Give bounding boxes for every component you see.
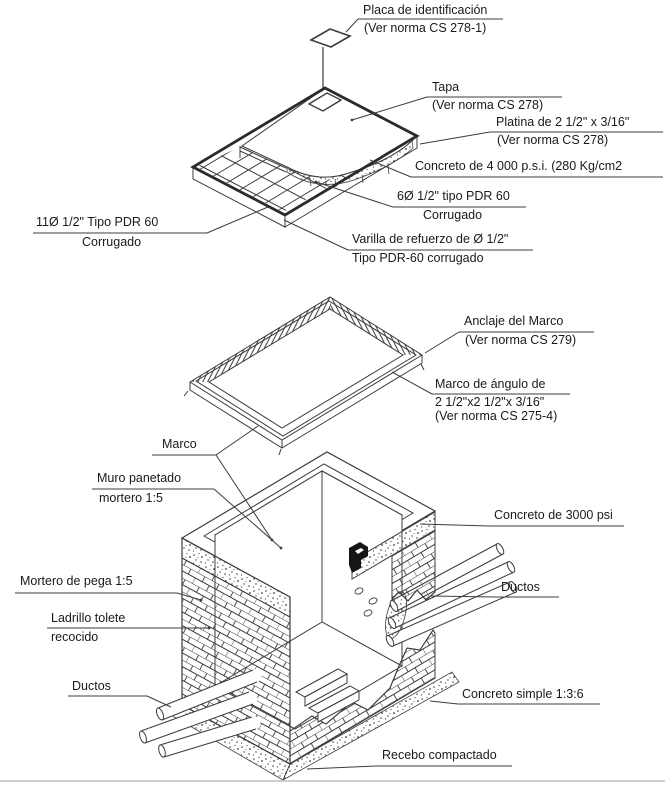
label-tapa-line2: (Ver norma CS 278): [432, 99, 543, 112]
label-marco-angulo-line3: (Ver norma CS 275-4): [435, 410, 557, 423]
label-muro-line1: Muro panetado: [97, 472, 181, 485]
label-marco: Marco: [162, 438, 197, 451]
label-ductos-right: Ductos: [501, 581, 540, 594]
label-anclaje-line1: Anclaje del Marco: [464, 315, 563, 328]
label-varilla-line2: Tipo PDR-60 corrugado: [352, 252, 484, 265]
label-platina-line2: (Ver norma CS 278): [497, 134, 608, 147]
label-rebar11-line2: Corrugado: [82, 236, 141, 249]
figure-chamber: [138, 452, 518, 780]
label-concreto4000: Concreto de 4 000 p.s.i. (280 Kg/cm2: [415, 160, 622, 173]
label-rebar11-line1: 11Ø 1/2" Tipo PDR 60: [36, 216, 158, 229]
label-placa-line1: Placa de identificación: [363, 4, 487, 17]
technical-diagram-page: Placa de identificación (Ver norma CS 27…: [0, 0, 665, 785]
label-marco-angulo-line2: 2 1/2"x2 1/2"x 3/16": [435, 396, 544, 409]
label-rebar6-line1: 6Ø 1/2" tipo PDR 60: [397, 190, 510, 203]
label-concreto-simple: Concreto simple 1:3:6: [462, 688, 584, 701]
label-varilla-line1: Varilla de refuerzo de Ø 1/2": [352, 233, 508, 246]
label-concreto3000: Concreto de 3000 psi: [494, 509, 613, 522]
label-ladrillo-line2: recocido: [51, 631, 98, 644]
label-ladrillo-line1: Ladrillo tolete: [51, 612, 125, 625]
label-muro-line2: mortero 1:5: [99, 492, 163, 505]
label-platina-line1: Platina de 2 1/2" x 3/16": [496, 116, 629, 129]
figure-marco: [184, 297, 424, 455]
label-mortero-pega: Mortero de pega 1:5: [20, 575, 133, 588]
label-recebo: Recebo compactado: [382, 749, 497, 762]
label-placa-line2: (Ver norma CS 278-1): [364, 22, 486, 35]
identification-plate-shape: [311, 29, 350, 47]
label-rebar6-line2: Corrugado: [423, 209, 482, 222]
label-ductos-left: Ductos: [72, 680, 111, 693]
label-tapa-line1: Tapa: [432, 81, 459, 94]
label-marco-angulo-line1: Marco de ángulo de: [435, 378, 546, 391]
label-anclaje-line2: (Ver norma CS 279): [465, 334, 576, 347]
